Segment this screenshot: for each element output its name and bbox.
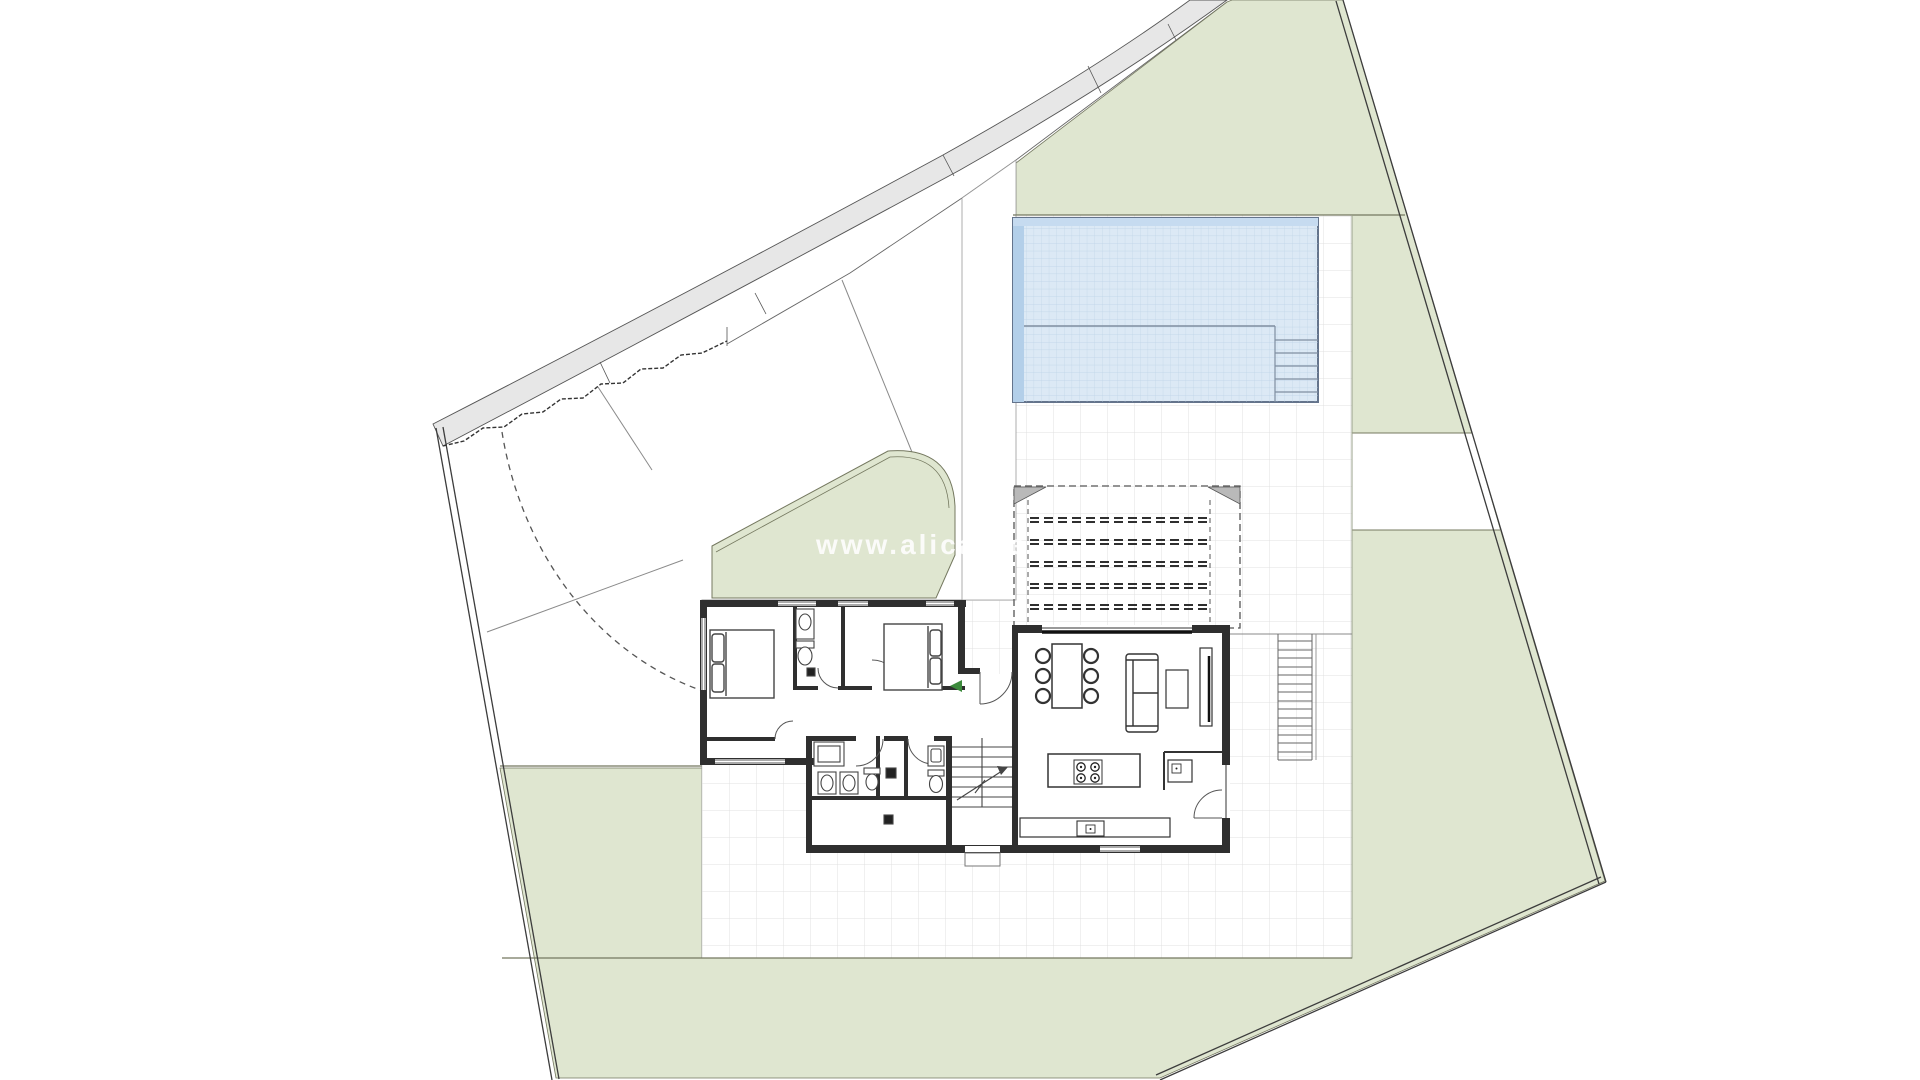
toilet-bowl xyxy=(930,776,943,793)
dining-chair xyxy=(1084,669,1098,683)
porch-opening xyxy=(965,846,1000,866)
bed-1 xyxy=(710,630,774,698)
toilet-tank xyxy=(864,768,880,774)
interior-wall xyxy=(810,796,952,800)
basin xyxy=(799,614,811,630)
interior-wall xyxy=(841,600,845,690)
storage-drain xyxy=(884,815,893,824)
parcel-line xyxy=(842,280,916,462)
pool-border-band-left xyxy=(1013,218,1024,402)
pool-border-band-top xyxy=(1013,218,1318,226)
window xyxy=(701,618,706,690)
interior-wall xyxy=(702,737,775,741)
window xyxy=(838,601,868,606)
interior-wall xyxy=(934,736,952,741)
floor-drain xyxy=(807,668,815,676)
exterior-wall xyxy=(806,736,812,853)
dining-chair xyxy=(1084,689,1098,703)
exterior-wall xyxy=(1012,674,1018,853)
dining-chair xyxy=(1084,649,1098,663)
parcel-line xyxy=(598,387,652,470)
appliance xyxy=(886,768,896,778)
dining-chair xyxy=(1036,669,1050,683)
window xyxy=(715,759,785,764)
pool xyxy=(1013,218,1318,402)
kitchen-counter xyxy=(1020,818,1170,837)
kitchen-island xyxy=(1048,754,1140,787)
garden-right-gap xyxy=(1352,433,1500,530)
boundary-left xyxy=(436,428,552,1080)
garden-front xyxy=(712,451,955,598)
porch-mat xyxy=(965,853,1000,866)
exterior-wall xyxy=(806,845,952,853)
tv-unit xyxy=(1200,648,1212,726)
exterior-wall xyxy=(1012,625,1018,674)
watermark-text: www.alicante xyxy=(815,529,1028,560)
interior-wall xyxy=(904,736,908,800)
sofa xyxy=(1126,654,1158,732)
toilet-bowl xyxy=(866,774,878,790)
interior-wall xyxy=(841,686,872,690)
exterior-wall xyxy=(946,736,952,853)
window xyxy=(778,601,816,606)
exterior-wall xyxy=(1222,625,1230,765)
window xyxy=(1100,846,1140,852)
pool-tile-grid xyxy=(1013,218,1318,402)
parcel-line xyxy=(487,560,683,632)
interior-wall xyxy=(793,686,818,690)
basin xyxy=(821,775,833,791)
garden-front-shape xyxy=(712,451,955,598)
interior-wall xyxy=(806,736,856,741)
dining-table xyxy=(1052,644,1082,708)
exterior-wall xyxy=(958,668,980,674)
basin xyxy=(843,775,855,791)
exterior-wall xyxy=(958,600,965,674)
boundary-left-inner xyxy=(443,427,559,1079)
window xyxy=(926,601,954,606)
coffee-table xyxy=(1166,670,1188,708)
toilet-bowl xyxy=(798,647,812,665)
dining-chair xyxy=(1036,649,1050,663)
bed-2 xyxy=(884,624,942,690)
dining-chair xyxy=(1036,689,1050,703)
site-plan-svg: www.alicante xyxy=(0,0,1920,1080)
